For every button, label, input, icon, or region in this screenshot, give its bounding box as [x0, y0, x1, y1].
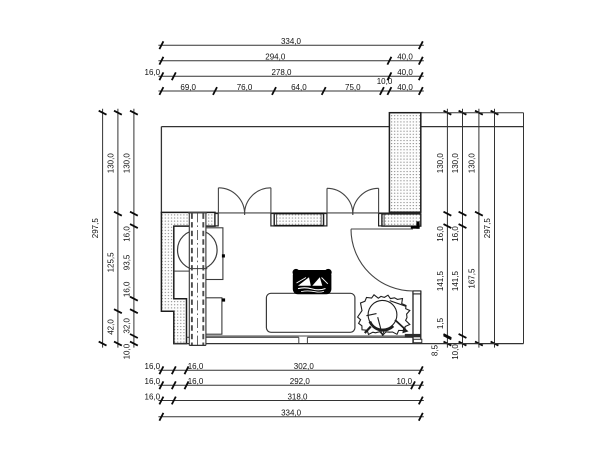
svg-text:294,0: 294,0 — [265, 53, 286, 62]
svg-text:278,0: 278,0 — [271, 68, 292, 77]
svg-text:302,0: 302,0 — [294, 362, 315, 371]
svg-text:297,5: 297,5 — [91, 218, 100, 239]
svg-text:42,0: 42,0 — [106, 319, 115, 335]
svg-text:40,0: 40,0 — [397, 53, 413, 62]
svg-text:16,0: 16,0 — [145, 68, 161, 77]
svg-text:10,0: 10,0 — [122, 343, 131, 359]
svg-text:318,0: 318,0 — [287, 392, 308, 401]
svg-text:141,5: 141,5 — [451, 271, 460, 292]
svg-text:16,0: 16,0 — [122, 226, 131, 242]
svg-text:40,0: 40,0 — [397, 68, 413, 77]
svg-text:75,0: 75,0 — [345, 83, 361, 92]
svg-text:8,5: 8,5 — [431, 344, 440, 356]
svg-text:130,0: 130,0 — [451, 153, 460, 174]
svg-text:64,0: 64,0 — [291, 83, 307, 92]
svg-text:130,0: 130,0 — [122, 153, 131, 174]
svg-text:16,0: 16,0 — [145, 377, 161, 386]
svg-text:16,0: 16,0 — [145, 392, 161, 401]
svg-text:69,0: 69,0 — [180, 83, 196, 92]
svg-text:10,0: 10,0 — [377, 77, 393, 86]
svg-text:10,0: 10,0 — [451, 344, 460, 360]
svg-text:334,0: 334,0 — [281, 37, 302, 46]
svg-text:141,5: 141,5 — [436, 271, 445, 292]
svg-text:16,0: 16,0 — [188, 377, 204, 386]
svg-text:334,0: 334,0 — [281, 409, 302, 418]
svg-text:125,5: 125,5 — [106, 252, 115, 273]
svg-text:16,0: 16,0 — [122, 281, 131, 297]
svg-text:16,0: 16,0 — [145, 362, 161, 371]
svg-text:16,0: 16,0 — [188, 362, 204, 371]
svg-text:130,0: 130,0 — [467, 153, 476, 174]
svg-text:130,0: 130,0 — [106, 153, 115, 174]
svg-text:16,0: 16,0 — [451, 226, 460, 242]
svg-text:1,5: 1,5 — [436, 317, 445, 329]
svg-text:292,0: 292,0 — [290, 377, 311, 386]
svg-text:76,0: 76,0 — [237, 83, 253, 92]
svg-text:16,0: 16,0 — [436, 226, 445, 242]
svg-text:93,5: 93,5 — [122, 254, 131, 270]
svg-text:32,0: 32,0 — [122, 317, 131, 333]
svg-text:40,0: 40,0 — [397, 83, 413, 92]
svg-text:130,0: 130,0 — [436, 153, 445, 174]
svg-text:10,0: 10,0 — [397, 377, 413, 386]
svg-text:167,5: 167,5 — [467, 268, 476, 289]
svg-text:297,5: 297,5 — [483, 218, 492, 239]
